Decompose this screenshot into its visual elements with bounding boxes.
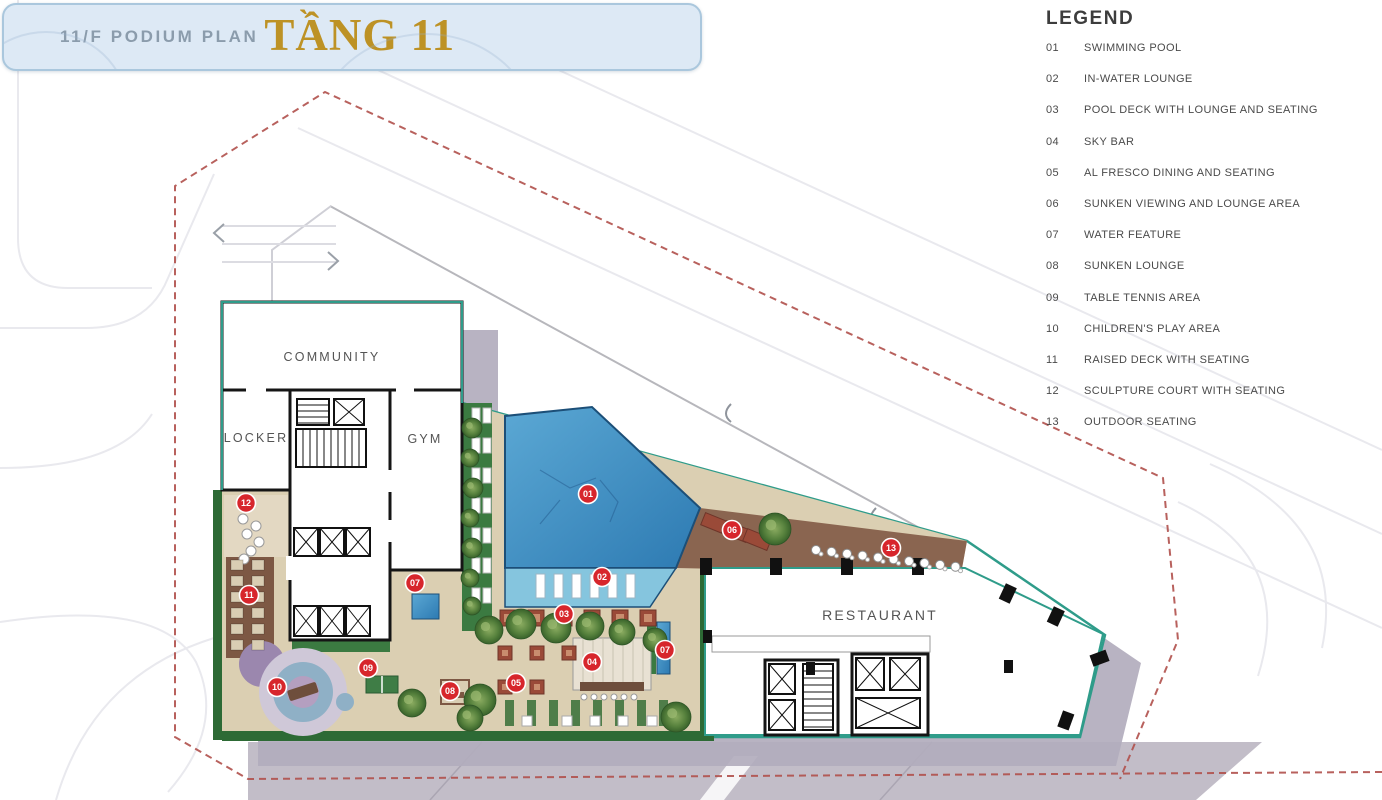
svg-text:02: 02 [597,572,607,582]
legend-item-number: 07 [1046,229,1084,241]
plan-marker-05: 05 [507,674,526,693]
legend-item-number: 10 [1046,323,1084,335]
legend-item-label: SUNKEN LOUNGE [1084,260,1378,272]
tree-icon [609,619,635,645]
svg-text:11: 11 [244,590,254,600]
tree-icon [463,478,483,498]
svg-text:04: 04 [587,657,597,667]
legend-item-number: 03 [1046,104,1084,116]
legend-item-label: TABLE TENNIS AREA [1084,292,1378,304]
water-feature-a [412,594,439,619]
legend-item-label: SCULPTURE COURT WITH SEATING [1084,385,1378,397]
plan-marker-07: 07 [656,641,675,660]
legend-item: 03POOL DECK WITH LOUNGE AND SEATING [1046,104,1378,135]
plan-marker-02: 02 [593,568,612,587]
tree-icon [506,609,536,639]
legend-item: 02IN-WATER LOUNGE [1046,73,1378,104]
tree-icon [462,538,482,558]
tree-icon [461,569,479,587]
podium-plan-page: { "title": { "plan_label": "11/F PODIUM … [0,0,1382,800]
tree-icon [576,612,604,640]
floor-title: TẦNG 11 [264,13,455,58]
tree-icon [463,597,481,615]
plan-marker-07: 07 [406,574,425,593]
legend-item-label: CHILDREN'S PLAY AREA [1084,323,1378,335]
svg-text:08: 08 [445,686,455,696]
legend-panel: LEGEND 01SWIMMING POOL02IN-WATER LOUNGE0… [1046,8,1378,447]
plan-marker-13: 13 [882,539,901,558]
svg-text:07: 07 [410,578,420,588]
legend-item-label: RAISED DECK WITH SEATING [1084,354,1378,366]
svg-text:05: 05 [511,678,521,688]
tree-icon [461,509,479,527]
svg-text:03: 03 [559,609,569,619]
legend-item-number: 06 [1046,198,1084,210]
legend-item: 11RAISED DECK WITH SEATING [1046,354,1378,385]
legend-item-number: 02 [1046,73,1084,85]
legend-item: 07WATER FEATURE [1046,229,1378,260]
svg-text:12: 12 [241,498,251,508]
svg-text:10: 10 [272,682,282,692]
svg-text:07: 07 [660,645,670,655]
plan-marker-11: 11 [240,586,259,605]
tree-icon [475,616,503,644]
legend-item-number: 01 [1046,42,1084,54]
legend-item-number: 12 [1046,385,1084,397]
legend-item: 13OUTDOOR SEATING [1046,416,1378,447]
plan-marker-01: 01 [579,485,598,504]
tree-icon [661,702,691,732]
legend-item: 10CHILDREN'S PLAY AREA [1046,323,1378,354]
legend-item-label: WATER FEATURE [1084,229,1378,241]
tree-icon [759,513,791,545]
plan-marker-10: 10 [268,678,287,697]
room-label-restaurant: RESTAURANT [822,607,938,623]
legend-item: 12SCULPTURE COURT WITH SEATING [1046,385,1378,416]
plan-title: 11/F PODIUM PLAN [60,27,258,47]
legend-item-label: AL FRESCO DINING AND SEATING [1084,167,1378,179]
title-banner: 11/F PODIUM PLAN TẦNG 11 [2,3,702,71]
plan-marker-03: 03 [555,605,574,624]
tree-icon [461,449,479,467]
legend-item: 08SUNKEN LOUNGE [1046,260,1378,291]
plan-marker-12: 12 [237,494,256,513]
svg-text:06: 06 [727,525,737,535]
legend-heading: LEGEND [1046,8,1378,30]
legend-item: 05AL FRESCO DINING AND SEATING [1046,167,1378,198]
legend-item-number: 09 [1046,292,1084,304]
legend-item: 04SKY BAR [1046,136,1378,167]
legend-item-label: SKY BAR [1084,136,1378,148]
legend-item-label: OUTDOOR SEATING [1084,416,1378,428]
legend-item-label: IN-WATER LOUNGE [1084,73,1378,85]
plan-marker-08: 08 [441,682,460,701]
plan-marker-04: 04 [583,653,602,672]
legend-item-label: SUNKEN VIEWING AND LOUNGE AREA [1084,198,1378,210]
plan-marker-06: 06 [723,521,742,540]
plan-marker-09: 09 [359,659,378,678]
legend-item: 06SUNKEN VIEWING AND LOUNGE AREA [1046,198,1378,229]
legend-item-label: SWIMMING POOL [1084,42,1378,54]
legend-items: 01SWIMMING POOL02IN-WATER LOUNGE03POOL D… [1046,42,1378,447]
legend-item-number: 11 [1046,354,1084,366]
legend-item-number: 08 [1046,260,1084,272]
legend-item-number: 05 [1046,167,1084,179]
tree-icon [457,705,483,731]
legend-item-number: 04 [1046,136,1084,148]
room-label-gym: GYM [407,432,442,446]
room-label-community: COMMUNITY [284,350,381,364]
svg-text:01: 01 [583,489,593,499]
legend-item: 01SWIMMING POOL [1046,42,1378,73]
tree-icon [398,689,426,717]
svg-text:13: 13 [886,543,896,553]
legend-item-label: POOL DECK WITH LOUNGE AND SEATING [1084,104,1378,116]
room-label-locker: LOCKER [224,431,289,445]
legend-item: 09TABLE TENNIS AREA [1046,292,1378,323]
tree-icon [462,418,482,438]
legend-item-number: 13 [1046,416,1084,428]
svg-text:09: 09 [363,663,373,673]
